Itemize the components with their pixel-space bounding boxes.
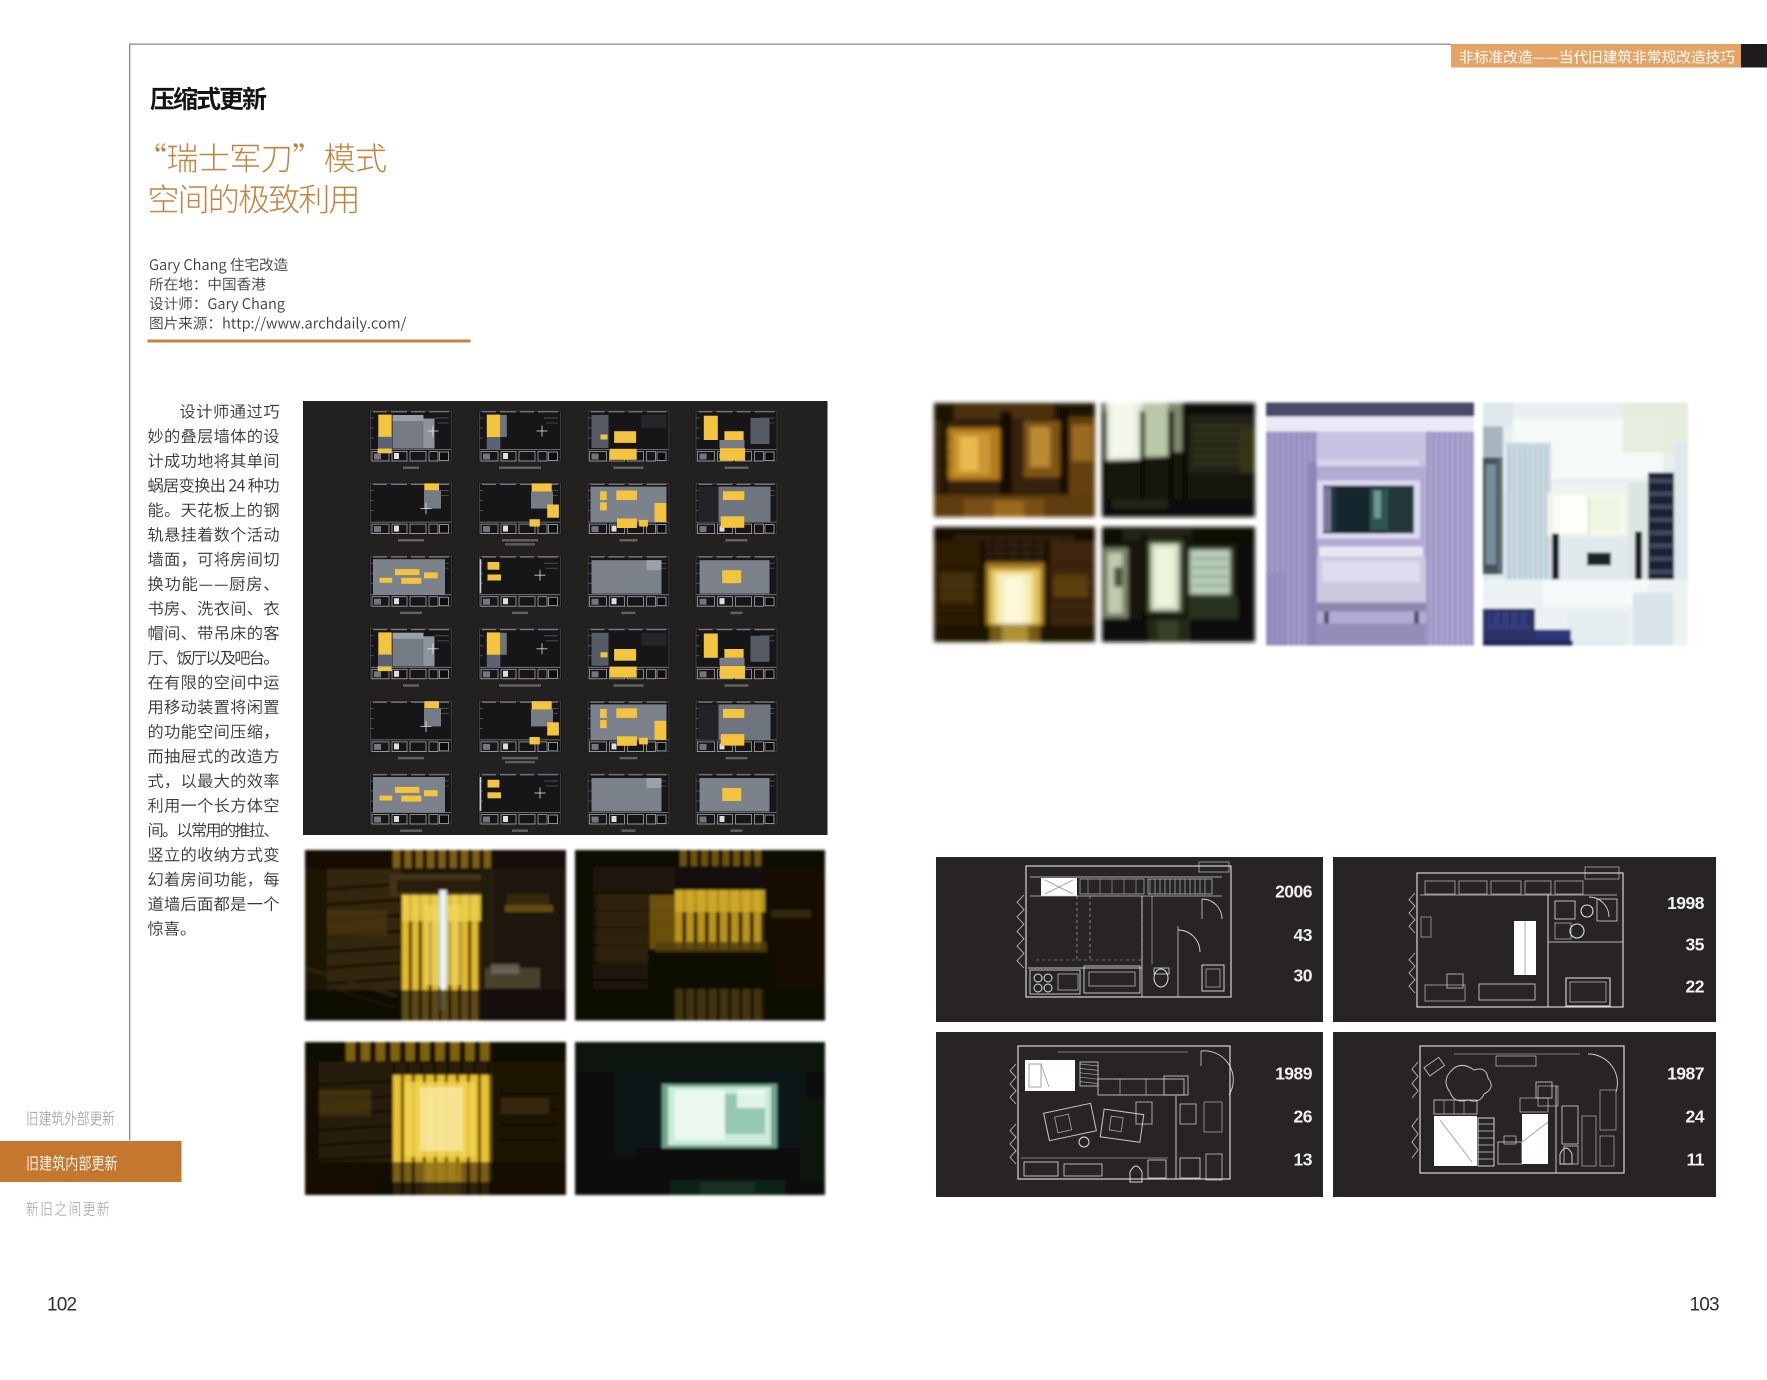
svg-text:24: 24 xyxy=(1686,1107,1705,1127)
svg-text:1989: 1989 xyxy=(1275,1064,1313,1084)
svg-text:11: 11 xyxy=(1687,1150,1705,1170)
svg-text:1987: 1987 xyxy=(1667,1064,1704,1084)
svg-text:13: 13 xyxy=(1294,1150,1313,1170)
svg-text:22: 22 xyxy=(1686,977,1705,997)
svg-text:103: 103 xyxy=(1690,1295,1720,1316)
svg-text:102: 102 xyxy=(47,1295,77,1316)
svg-text:43: 43 xyxy=(1294,925,1313,945)
svg-text:1998: 1998 xyxy=(1667,893,1705,913)
svg-text:30: 30 xyxy=(1294,966,1313,986)
svg-text:35: 35 xyxy=(1686,935,1705,955)
svg-text:26: 26 xyxy=(1294,1107,1313,1127)
svg-text:2006: 2006 xyxy=(1275,882,1313,902)
